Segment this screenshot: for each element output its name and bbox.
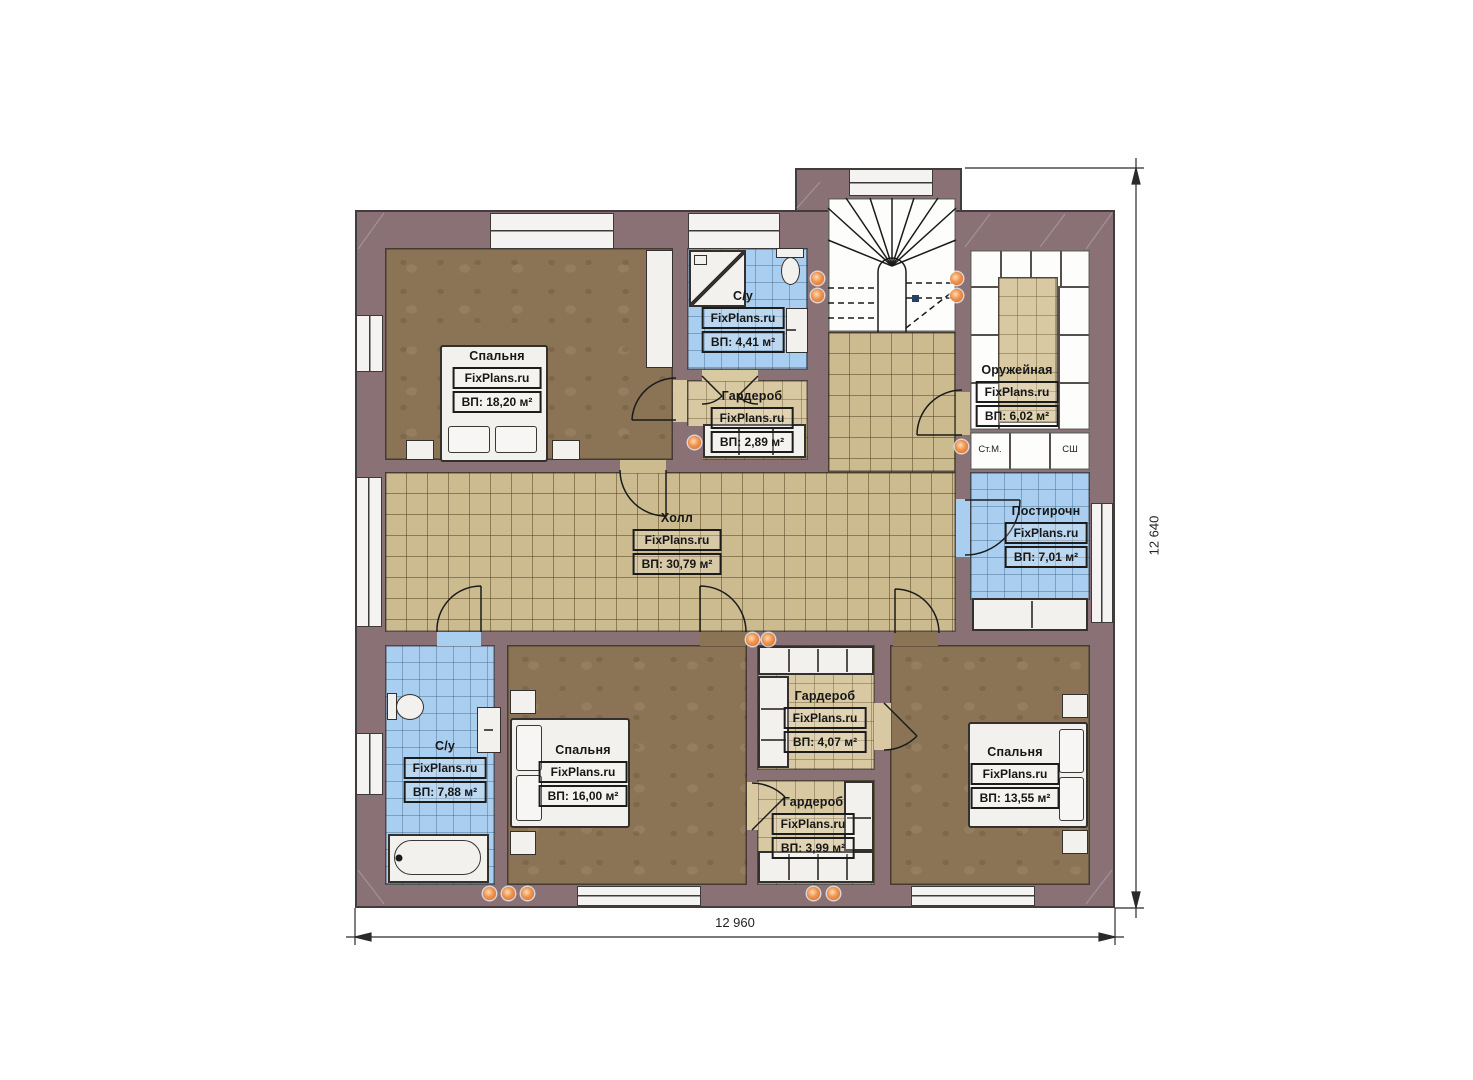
window bbox=[1091, 503, 1113, 623]
area-label: ВП: 13,55 м² bbox=[971, 787, 1060, 809]
window bbox=[849, 169, 933, 196]
toilet-icon bbox=[781, 257, 800, 285]
socket-dot bbox=[950, 272, 963, 285]
door-opening bbox=[893, 632, 938, 646]
area-label: ВП: 4,07 м² bbox=[784, 731, 867, 753]
door-opening bbox=[956, 499, 970, 557]
brand-label: FixPlans.ru bbox=[702, 307, 785, 329]
room-label-bathroom-top: С/у FixPlans.ru ВП: 4,41 м² bbox=[702, 290, 785, 353]
door-opening bbox=[702, 370, 758, 381]
room-name: Постирочн bbox=[1005, 505, 1088, 519]
closet-unit bbox=[758, 646, 874, 675]
area-label: ВП: 16,00 м² bbox=[539, 785, 628, 807]
socket-dot bbox=[746, 633, 759, 646]
area-label: ВП: 7,01 м² bbox=[1005, 546, 1088, 568]
room-name: Спальня bbox=[539, 744, 628, 758]
door-opening bbox=[437, 632, 481, 646]
window bbox=[577, 886, 701, 906]
window bbox=[688, 213, 780, 249]
floor-plan-canvas: Спальня FixPlans.ru ВП: 18,20 м² С/у Fix… bbox=[0, 0, 1473, 1080]
socket-dot bbox=[762, 633, 775, 646]
drying-cabinet-label: СШ bbox=[1050, 444, 1090, 455]
room-name: Гардероб bbox=[772, 796, 855, 810]
bathtub-icon bbox=[388, 834, 489, 883]
area-label: ВП: 30,79 м² bbox=[633, 553, 722, 575]
area-label: ВП: 4,41 м² bbox=[702, 331, 785, 353]
door-opening bbox=[700, 632, 746, 646]
washing-machine-label: Ст.М. bbox=[970, 444, 1010, 455]
room-label-armory: Оружейная FixPlans.ru ВП: 6,02 м² bbox=[976, 364, 1059, 427]
room-label-bedroom-bottom-middle: Спальня FixPlans.ru ВП: 16,00 м² bbox=[539, 744, 628, 807]
dimension-width-label: 12 960 bbox=[685, 915, 785, 930]
door-opening bbox=[956, 392, 970, 435]
room-label-hall: Холл FixPlans.ru ВП: 30,79 м² bbox=[633, 512, 722, 575]
socket-dot bbox=[950, 289, 963, 302]
door-opening bbox=[673, 380, 687, 422]
nightstand-icon bbox=[510, 690, 536, 714]
room-label-wardrobe-bottom: Гардероб FixPlans.ru ВП: 3,99 м² bbox=[772, 796, 855, 859]
room-label-wardrobe-top: Гардероб FixPlans.ru ВП: 2,89 м² bbox=[711, 390, 794, 453]
room-label-bedroom-bottom-right: Спальня FixPlans.ru ВП: 13,55 м² bbox=[971, 746, 1060, 809]
room-name: Гардероб bbox=[711, 390, 794, 404]
door-opening bbox=[874, 703, 891, 750]
toilet-icon bbox=[396, 694, 424, 720]
room-name: Гардероб bbox=[784, 690, 867, 704]
hall-corridor-floor bbox=[828, 332, 956, 472]
brand-label: FixPlans.ru bbox=[772, 813, 855, 835]
brand-label: FixPlans.ru bbox=[404, 757, 487, 779]
socket-dot bbox=[811, 289, 824, 302]
window bbox=[490, 213, 614, 249]
nightstand-icon bbox=[1062, 830, 1088, 854]
brand-label: FixPlans.ru bbox=[971, 763, 1060, 785]
brand-label: FixPlans.ru bbox=[633, 529, 722, 551]
area-label: ВП: 7,88 м² bbox=[404, 781, 487, 803]
brand-label: FixPlans.ru bbox=[784, 707, 867, 729]
room-name: Спальня bbox=[453, 350, 542, 364]
room-label-bedroom-top-left: Спальня FixPlans.ru ВП: 18,20 м² bbox=[453, 350, 542, 413]
area-label: ВП: 18,20 м² bbox=[453, 391, 542, 413]
sink-icon bbox=[786, 308, 808, 353]
room-name: С/у bbox=[404, 740, 487, 754]
cabinet-icon bbox=[646, 250, 673, 368]
room-label-wardrobe-middle: Гардероб FixPlans.ru ВП: 4,07 м² bbox=[784, 690, 867, 753]
area-label: ВП: 3,99 м² bbox=[772, 837, 855, 859]
socket-dot bbox=[521, 887, 534, 900]
area-label: ВП: 2,89 м² bbox=[711, 431, 794, 453]
nightstand-icon bbox=[510, 831, 536, 855]
room-name: Спальня bbox=[971, 746, 1060, 760]
room-label-bathroom-bottom: С/у FixPlans.ru ВП: 7,88 м² bbox=[404, 740, 487, 803]
nightstand-icon bbox=[1062, 694, 1088, 718]
room-name: С/у bbox=[702, 290, 785, 304]
socket-dot bbox=[483, 887, 496, 900]
window bbox=[356, 733, 383, 795]
socket-dot bbox=[688, 436, 701, 449]
dimension-height-label: 12 640 bbox=[1147, 500, 1162, 572]
window bbox=[356, 477, 382, 627]
staircase-floor bbox=[828, 198, 956, 332]
room-name: Оружейная bbox=[976, 364, 1059, 378]
door-opening bbox=[747, 782, 758, 830]
nightstand-icon bbox=[552, 440, 580, 460]
brand-label: FixPlans.ru bbox=[1005, 522, 1088, 544]
socket-dot bbox=[502, 887, 515, 900]
door-opening bbox=[620, 460, 666, 473]
room-label-laundry: Постирочн FixPlans.ru ВП: 7,01 м² bbox=[1005, 505, 1088, 568]
brand-label: FixPlans.ru bbox=[976, 381, 1059, 403]
window bbox=[356, 315, 383, 372]
area-label: ВП: 6,02 м² bbox=[976, 405, 1059, 427]
socket-dot bbox=[955, 440, 968, 453]
socket-dot bbox=[811, 272, 824, 285]
window bbox=[911, 886, 1035, 906]
room-name: Холл bbox=[633, 512, 722, 526]
socket-dot bbox=[807, 887, 820, 900]
brand-label: FixPlans.ru bbox=[539, 761, 628, 783]
nightstand-icon bbox=[406, 440, 434, 460]
brand-label: FixPlans.ru bbox=[453, 367, 542, 389]
closet-unit bbox=[972, 598, 1088, 631]
brand-label: FixPlans.ru bbox=[711, 407, 794, 429]
socket-dot bbox=[827, 887, 840, 900]
